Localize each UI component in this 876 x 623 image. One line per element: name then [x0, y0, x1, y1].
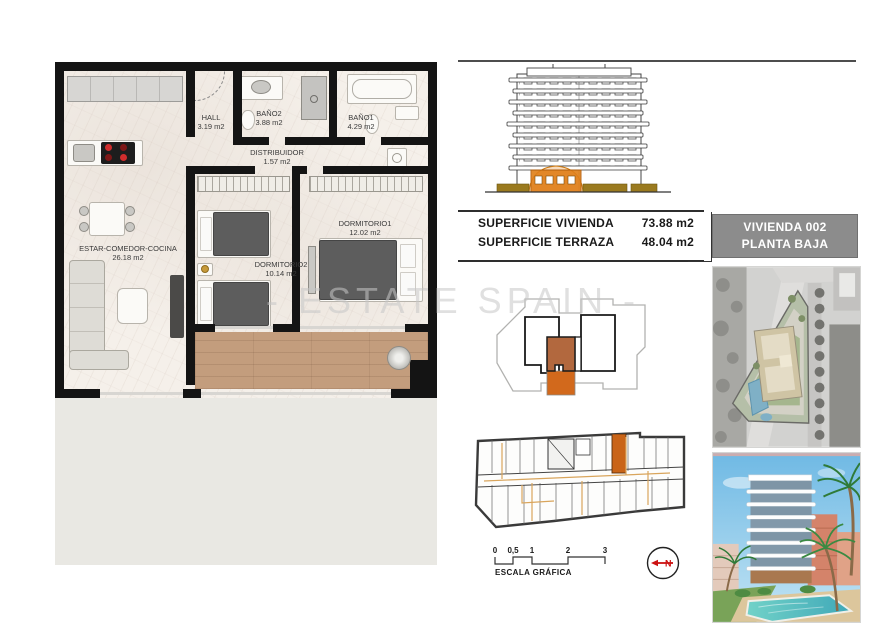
- room-area: 3.19 m2: [197, 123, 224, 132]
- brochure-page: HALL 3.19 m2 BAÑO2 3.88 m2 BAÑO1 4.29 m2…: [0, 0, 876, 623]
- bed-pillow: [400, 244, 416, 268]
- bathroom1-vanity: [395, 106, 419, 120]
- terrace-door-glass: [201, 392, 391, 395]
- wall: [405, 324, 428, 332]
- apartment-floorplan: HALL 3.19 m2 BAÑO2 3.88 m2 BAÑO1 4.29 m2…: [55, 62, 437, 565]
- aerial-site-photo: [712, 266, 861, 448]
- bedroom-door-glass: [215, 326, 273, 329]
- wall: [55, 389, 100, 398]
- burner-icon: [120, 154, 127, 161]
- summary-label: SUPERFICIE TERRAZA: [478, 234, 614, 250]
- bathroom2-sink: [251, 80, 271, 94]
- dining-chair: [79, 222, 89, 232]
- summary-value: 48.04 m2: [642, 234, 694, 250]
- wall: [183, 389, 201, 398]
- north-label: N: [665, 559, 672, 569]
- room-label-distribuidor: DISTRIBUIDOR 1.57 m2: [250, 149, 304, 166]
- badge-connector-line: [688, 261, 711, 262]
- wall: [233, 137, 269, 145]
- burner-icon: [105, 154, 112, 161]
- bed-pillow: [400, 272, 416, 296]
- bed-blanket: [213, 212, 269, 256]
- unit-number: VIVIENDA 002: [743, 219, 826, 236]
- room-label-dormitorio2: DORMITORIO2 10.14 m2: [255, 261, 308, 278]
- tv-unit: [170, 275, 184, 338]
- dining-chair: [125, 222, 135, 232]
- summary-row: SUPERFICIE VIVIENDA 73.88 m2: [458, 212, 704, 231]
- shower: [301, 76, 327, 120]
- wardrobe: [309, 176, 423, 192]
- toilet: [241, 110, 255, 130]
- scale-tick: 0,5: [507, 546, 518, 555]
- wall: [186, 71, 195, 137]
- lamp-icon: [201, 265, 209, 273]
- wall: [300, 166, 307, 174]
- unit-floor: PLANTA BAJA: [742, 236, 829, 253]
- scale-bar-graphic: [492, 556, 608, 566]
- wall: [292, 166, 300, 332]
- building-render-photo: [712, 452, 861, 623]
- room-label-bano1: BAÑO1 4.29 m2: [347, 114, 374, 131]
- wall: [329, 71, 337, 137]
- sofa: [69, 260, 105, 356]
- room-label-bano2: BAÑO2 3.88 m2: [255, 110, 282, 127]
- wall: [186, 166, 195, 385]
- room-area: 10.14 m2: [255, 270, 308, 279]
- building-elevation-drawing: [483, 64, 673, 204]
- room-label-hall: HALL 3.19 m2: [197, 114, 224, 131]
- burner-icon: [120, 144, 127, 151]
- shower-drain-icon: [310, 95, 318, 103]
- scale-bar: 0 0,5 1 2 3 ESCALA GRÁFICA: [492, 546, 608, 582]
- wall: [55, 62, 64, 398]
- bathtub-basin: [352, 79, 412, 99]
- wall: [186, 166, 255, 174]
- unit-badge: VIVIENDA 002 PLANTA BAJA: [712, 214, 858, 258]
- summary-row: SUPERFICIE TERRAZA 48.04 m2: [458, 231, 704, 250]
- wall: [233, 71, 242, 137]
- wall: [55, 62, 437, 71]
- scale-tick: 2: [566, 546, 570, 555]
- room-area: 3.88 m2: [255, 119, 282, 128]
- wall: [285, 137, 365, 145]
- room-area: 12.02 m2: [339, 229, 392, 238]
- scale-tick: 0: [493, 546, 497, 555]
- bathtub: [347, 74, 417, 104]
- summary-table: SUPERFICIE VIVIENDA 73.88 m2 SUPERFICIE …: [458, 210, 704, 262]
- wardrobe: [197, 176, 290, 192]
- summary-value: 73.88 m2: [642, 215, 694, 231]
- scale-tick: 1: [530, 546, 534, 555]
- entrance-door-arc: [195, 71, 225, 101]
- terrace-door-glass: [100, 392, 183, 395]
- kitchen-cabinets: [67, 76, 183, 102]
- dining-chair: [79, 206, 89, 216]
- summary-label: SUPERFICIE VIVIENDA: [478, 215, 614, 231]
- bed-pillow: [200, 287, 212, 321]
- escala-label: ESCALA GRÁFICA: [495, 568, 572, 577]
- apartment-plan: HALL 3.19 m2 BAÑO2 3.88 m2 BAÑO1 4.29 m2…: [55, 62, 437, 398]
- dining-table: [89, 202, 125, 236]
- wall: [273, 324, 300, 332]
- room-label-estar: ESTAR-COMEDOR-COCINA 26.18 m2: [79, 245, 177, 262]
- bed-pillow: [200, 217, 212, 251]
- wall: [323, 166, 428, 174]
- scale-tick: 3: [603, 546, 607, 555]
- key-plan: [487, 287, 653, 423]
- outdoor-shower: [387, 346, 411, 370]
- room-area: 26.18 m2: [79, 254, 177, 263]
- room-area: 1.57 m2: [250, 158, 304, 167]
- stove: [101, 142, 135, 164]
- north-indicator: N: [645, 545, 681, 581]
- kitchen-sink: [73, 144, 95, 162]
- bed-bench: [308, 246, 316, 294]
- wall: [428, 62, 437, 398]
- washer-door-icon: [392, 153, 402, 163]
- room-area: 4.29 m2: [347, 123, 374, 132]
- room-label-dormitorio1: DORMITORIO1 12.02 m2: [339, 220, 392, 237]
- sofa-chaise: [69, 350, 129, 370]
- washing-machine: [387, 148, 407, 168]
- wall: [186, 324, 215, 332]
- bedroom-door-glass: [300, 326, 405, 329]
- bed-blanket: [319, 240, 397, 300]
- wall: [381, 137, 428, 145]
- bed-blanket: [213, 282, 269, 326]
- overview-floor-plan: [462, 421, 688, 543]
- burner-icon: [105, 144, 112, 151]
- terrace: [55, 398, 437, 565]
- dining-chair: [125, 206, 135, 216]
- coffee-table: [117, 288, 148, 324]
- divider-line: [458, 60, 856, 62]
- wall: [410, 360, 437, 398]
